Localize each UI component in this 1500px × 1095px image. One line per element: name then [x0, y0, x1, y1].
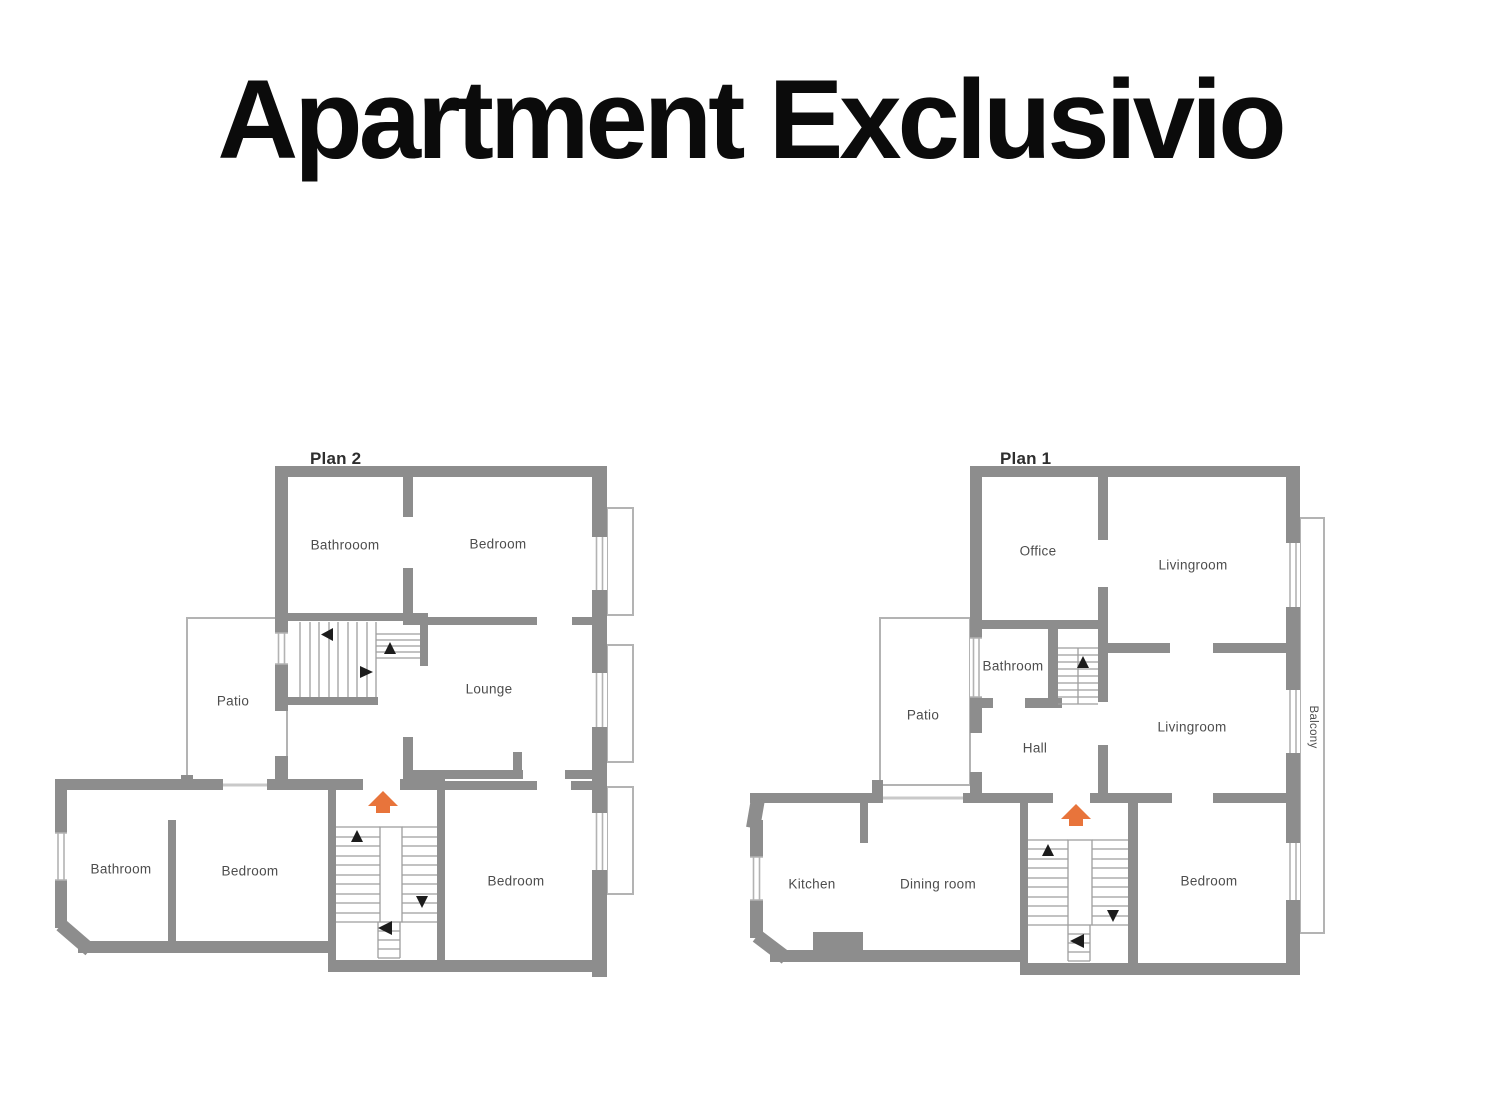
room-label-balcony: Balcony [1307, 705, 1319, 748]
staircase-main [336, 791, 437, 958]
room-label-dining-room: Dining room [900, 877, 976, 892]
staircase-main [1028, 804, 1128, 961]
slide-title: Apartment Exclusivio [0, 56, 1500, 185]
floor-plan-2-drawing [40, 440, 680, 1000]
room-label-office: Office [1020, 544, 1057, 559]
floor-plan-1-drawing [730, 440, 1430, 1000]
stair-direction-arrow-icon [351, 830, 363, 842]
room-label-bedroom-1: Bedroom [1181, 874, 1238, 889]
room-label-bathroom-bottom: Bathroom [91, 862, 152, 877]
room-label-bathroom-top: Bathrooom [311, 538, 380, 553]
room-label-livingroom-top: Livingroom [1158, 558, 1227, 573]
room-label-bedroom-top: Bedroom [470, 537, 527, 552]
entrance-arrow-icon [368, 791, 398, 813]
room-label-patio-1: Patio [907, 708, 939, 723]
stair-direction-arrow-icon [1070, 934, 1084, 948]
stair-direction-arrow-icon [321, 628, 333, 641]
room-label-bedroom-bottom: Bedroom [222, 864, 279, 879]
room-label-patio-2: Patio [217, 694, 249, 709]
room-label-bedroom-right: Bedroom [488, 874, 545, 889]
window-bay-outlines [607, 508, 633, 894]
room-label-livingroom-mid: Livingroom [1157, 720, 1226, 735]
room-label-kitchen: Kitchen [788, 877, 835, 892]
room-label-bathroom-1: Bathroom [983, 659, 1044, 674]
stair-direction-arrow-icon [378, 921, 392, 935]
stair-direction-arrow-icon [384, 642, 396, 654]
entrance-arrow-icon [1061, 804, 1091, 826]
plan-2-title: Plan 2 [310, 449, 361, 469]
staircase-upper [300, 622, 420, 697]
room-label-hall: Hall [1023, 741, 1047, 756]
staircase-upper [1058, 648, 1098, 704]
stair-direction-arrow-icon [416, 896, 428, 908]
patio-outline [880, 618, 970, 785]
slide: Apartment Exclusivio [0, 0, 1500, 1095]
room-label-lounge: Lounge [466, 682, 513, 697]
plan-1-title: Plan 1 [1000, 449, 1051, 469]
stair-direction-arrow-icon [1042, 844, 1054, 856]
